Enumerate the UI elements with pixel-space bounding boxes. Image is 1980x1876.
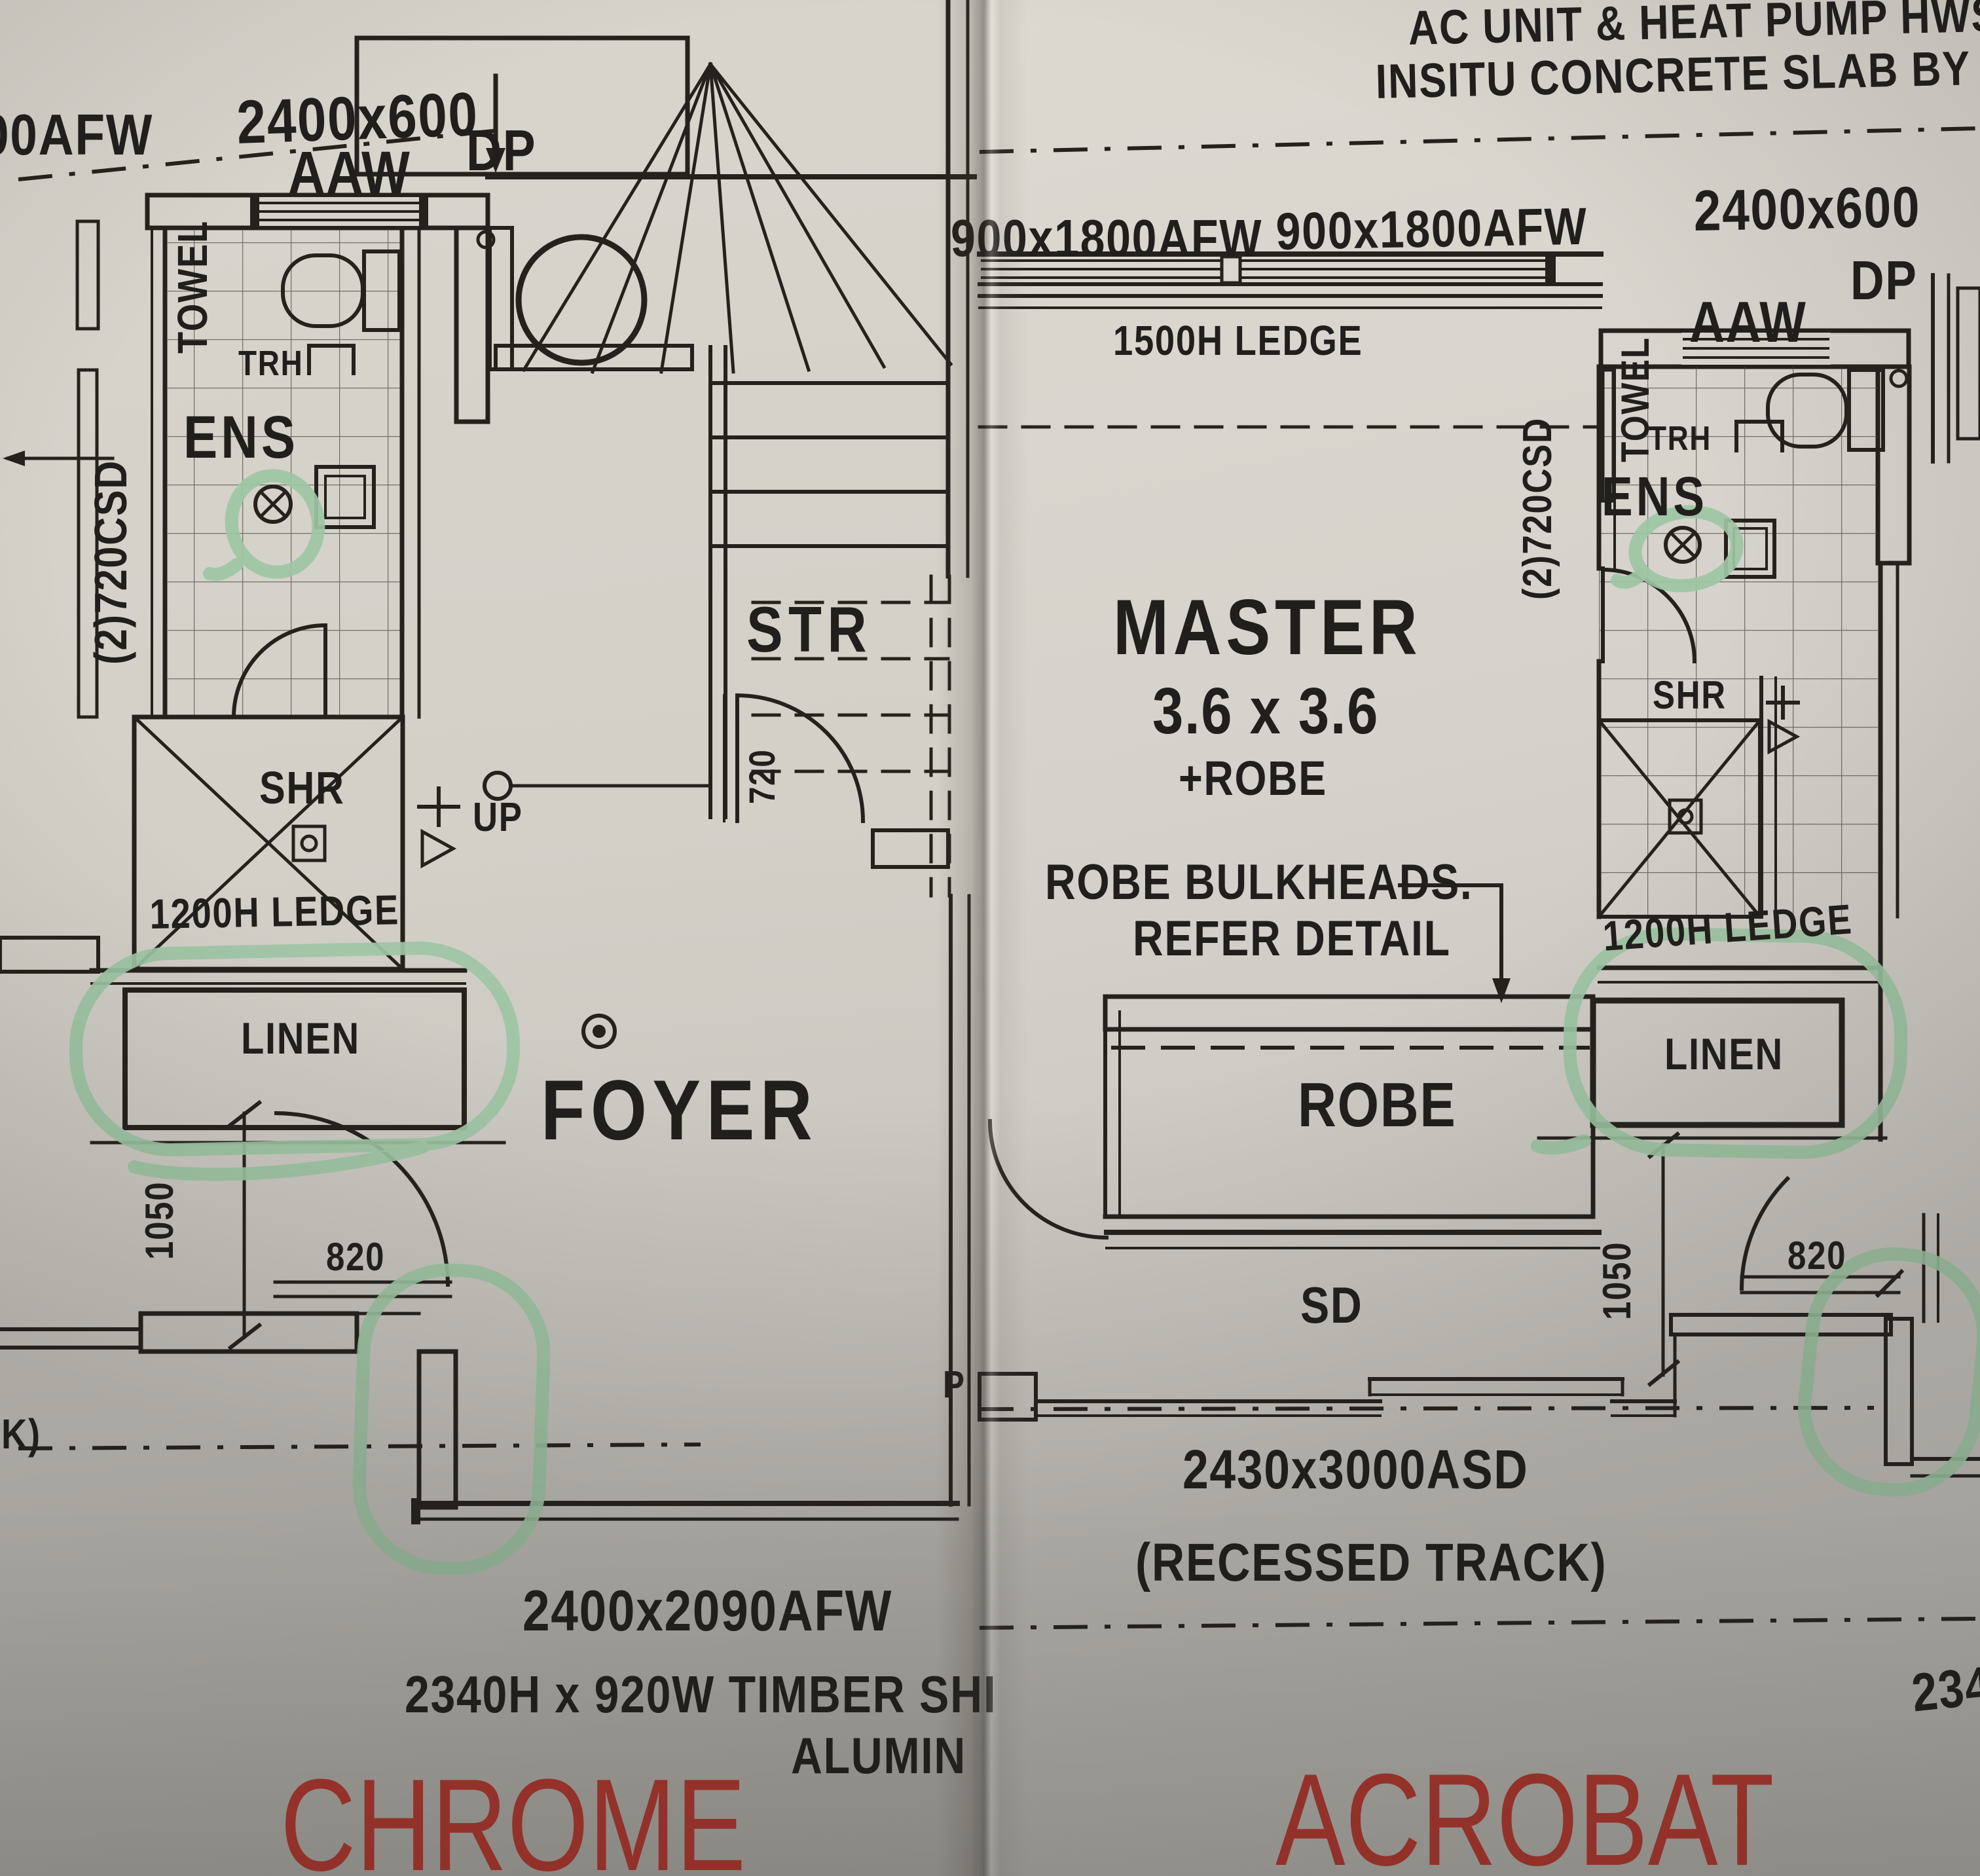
note-label: 2340H x 920W TIMBER SHI [405, 1668, 997, 1721]
stair-treads [710, 347, 948, 817]
window-label: 2400x600 [1693, 178, 1921, 240]
up-label: UP [473, 798, 523, 838]
shower-drain-icon [293, 826, 325, 860]
dim-label: 1050 [140, 1181, 179, 1260]
towel-label: TOWEL [172, 220, 213, 354]
dp-icon [1891, 371, 1907, 386]
room-label-ens: ENS [1602, 469, 1708, 524]
linen-label: LINEN [241, 1016, 360, 1061]
cut-text: P [943, 1366, 966, 1404]
linen-label: LINEN [1664, 1032, 1784, 1076]
left-caption: CHROME [280, 1760, 746, 1876]
room-label-master: MASTER [1113, 588, 1421, 667]
window-label: AAW [288, 143, 411, 203]
door-label: SD [1300, 1279, 1363, 1331]
shower-label: SHR [1653, 676, 1727, 715]
window-label: 900x1800AFW [1275, 200, 1588, 258]
note-label: REFER DETAIL [1133, 914, 1451, 964]
robe-bulkhead [1105, 997, 1592, 1029]
window-label: 900x1800AFW [951, 212, 1262, 265]
room-size-label: 3.6 x 3.6 [1152, 678, 1379, 744]
room-label-foyer: FOYER [541, 1067, 818, 1152]
shower-head-icon [422, 832, 453, 866]
photo-of-floorplan-comparison: 00AFW 2400x600 AAW DP TOWEL TRH ENS (2)7… [0, 0, 1980, 1876]
note-label: ROBE BULKHEADS. [1045, 858, 1473, 908]
window-label: AAW [1689, 293, 1807, 351]
shower-label: SHR [259, 765, 345, 811]
dim-label: 820 [1787, 1236, 1846, 1276]
cut-text: 2340 [1909, 1656, 1980, 1720]
door-swing [990, 1121, 1107, 1238]
trh-label: TRH [238, 346, 303, 381]
door-swing [1742, 1179, 1787, 1289]
trh-label: TRH [1649, 422, 1712, 456]
ledge-label: 1200H LEDGE [149, 889, 400, 935]
downpipe-label: DP [466, 122, 536, 179]
right-caption: ACROBAT [1275, 1755, 1774, 1876]
room-size-label: +ROBE [1179, 754, 1327, 803]
door-label: 2430x3000ASD [1182, 1442, 1529, 1497]
dim-label: 720 [744, 748, 780, 804]
door-spec-label: (2)720CSD [88, 460, 134, 665]
downpipe-label: DP [1850, 253, 1918, 308]
room-label-ens: ENS [183, 407, 299, 468]
room-label-str: STR [746, 597, 872, 661]
winder-fan [524, 64, 951, 372]
window-label: 2400x2090AFW [522, 1582, 892, 1640]
ledge-label: 1500H LEDGE [1113, 320, 1363, 361]
down-arrow-icon [1492, 978, 1511, 1003]
left-plan [0, 0, 974, 1524]
window-label: 00AFW [0, 106, 153, 164]
door-label: (RECESSED TRACK) [1135, 1536, 1607, 1590]
cut-text: K) [1, 1413, 41, 1455]
dim-label: 820 [326, 1238, 385, 1277]
door-spec-label: (2)720CSD [1518, 417, 1558, 600]
note-label: ALUMIN [791, 1730, 966, 1781]
dim-label: 1050 [1598, 1241, 1637, 1320]
robe-label: ROBE [1298, 1074, 1457, 1137]
